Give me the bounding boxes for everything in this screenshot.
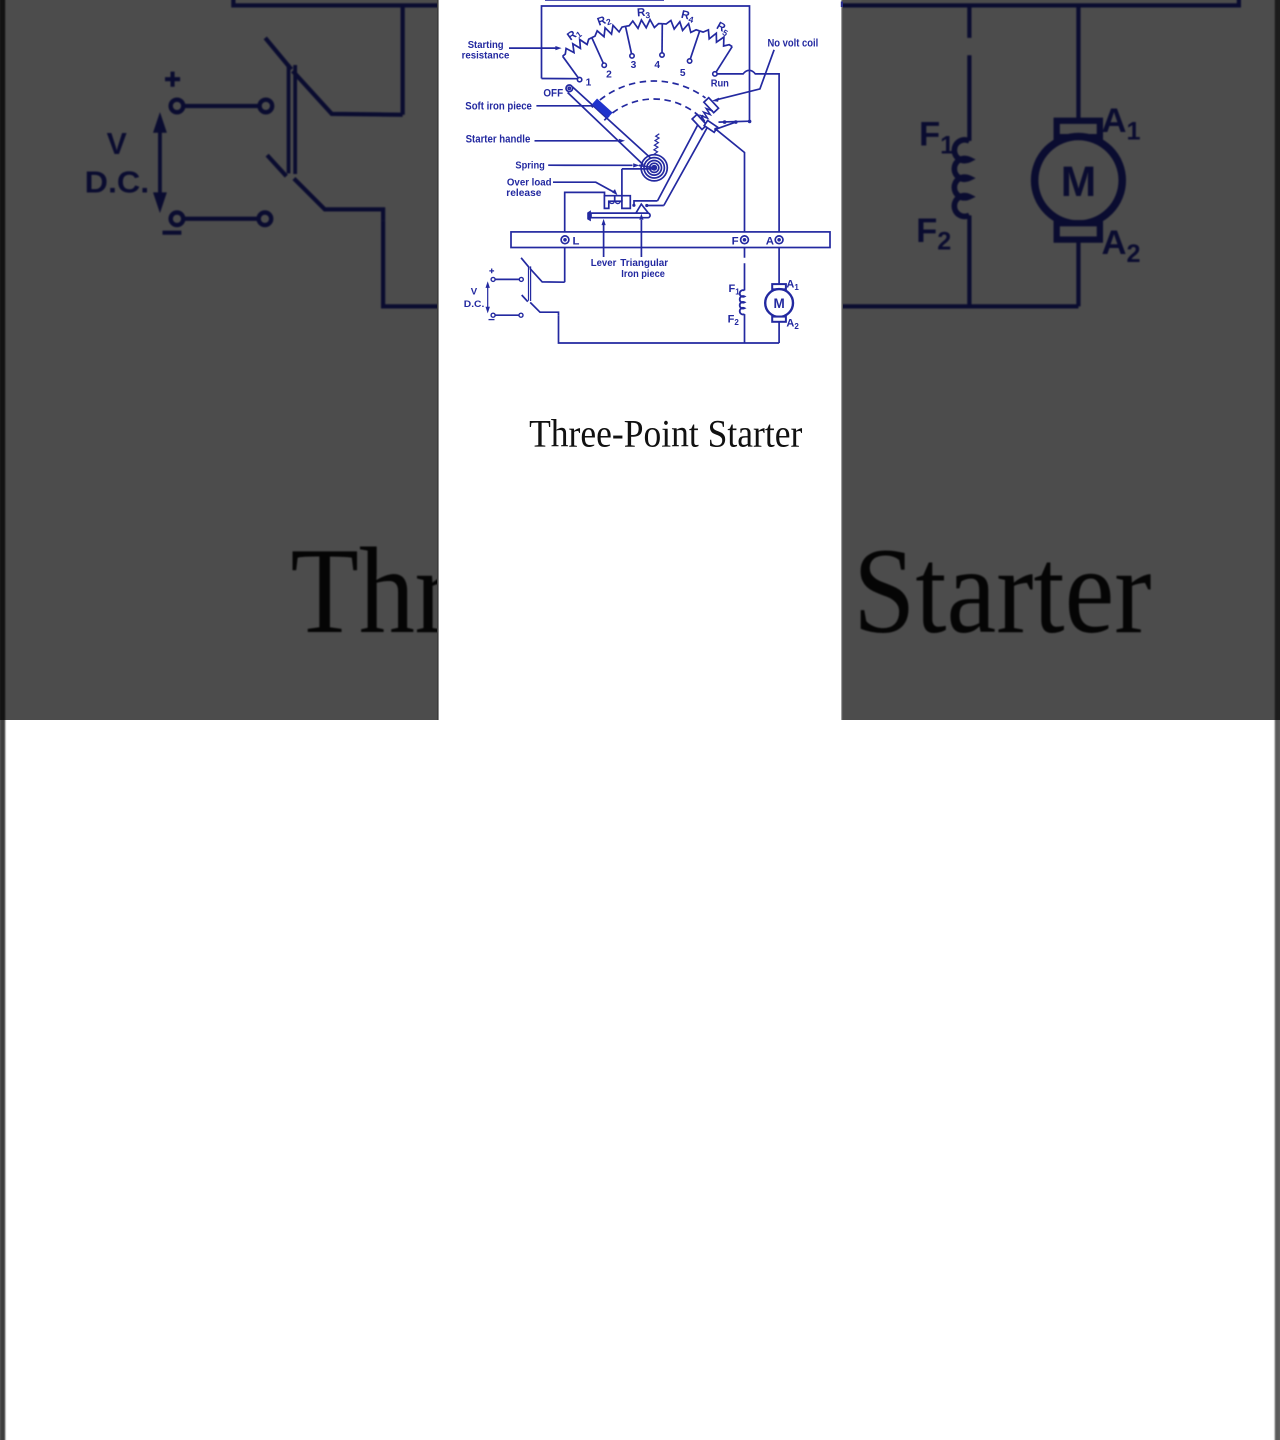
svg-text:Iron piece: Iron piece <box>621 269 665 280</box>
svg-text:M: M <box>773 296 784 311</box>
svg-text:3: 3 <box>631 60 637 71</box>
svg-text:L: L <box>573 235 580 247</box>
svg-text:OFF: OFF <box>543 88 563 100</box>
svg-text:5: 5 <box>680 68 686 79</box>
svg-text:release: release <box>506 187 541 199</box>
svg-text:Triangular: Triangular <box>620 258 668 269</box>
svg-text:2: 2 <box>606 69 612 80</box>
svg-text:Lever: Lever <box>591 258 617 269</box>
svg-text:Soft iron piece: Soft iron piece <box>465 100 532 112</box>
svg-text:Spring: Spring <box>515 160 544 172</box>
svg-text:1: 1 <box>586 78 592 89</box>
svg-text:V: V <box>471 287 478 298</box>
svg-text:D.C.: D.C. <box>464 299 485 310</box>
svg-text:4: 4 <box>654 60 660 71</box>
svg-text:Starter handle: Starter handle <box>466 133 531 145</box>
svg-text:No volt coil: No volt coil <box>768 38 819 50</box>
svg-text:F: F <box>732 235 739 247</box>
svg-text:Three-Point Starter: Three-Point Starter <box>529 412 802 455</box>
svg-text:resistance: resistance <box>462 50 510 62</box>
svg-text:Run: Run <box>711 78 729 90</box>
svg-text:A: A <box>766 235 774 247</box>
